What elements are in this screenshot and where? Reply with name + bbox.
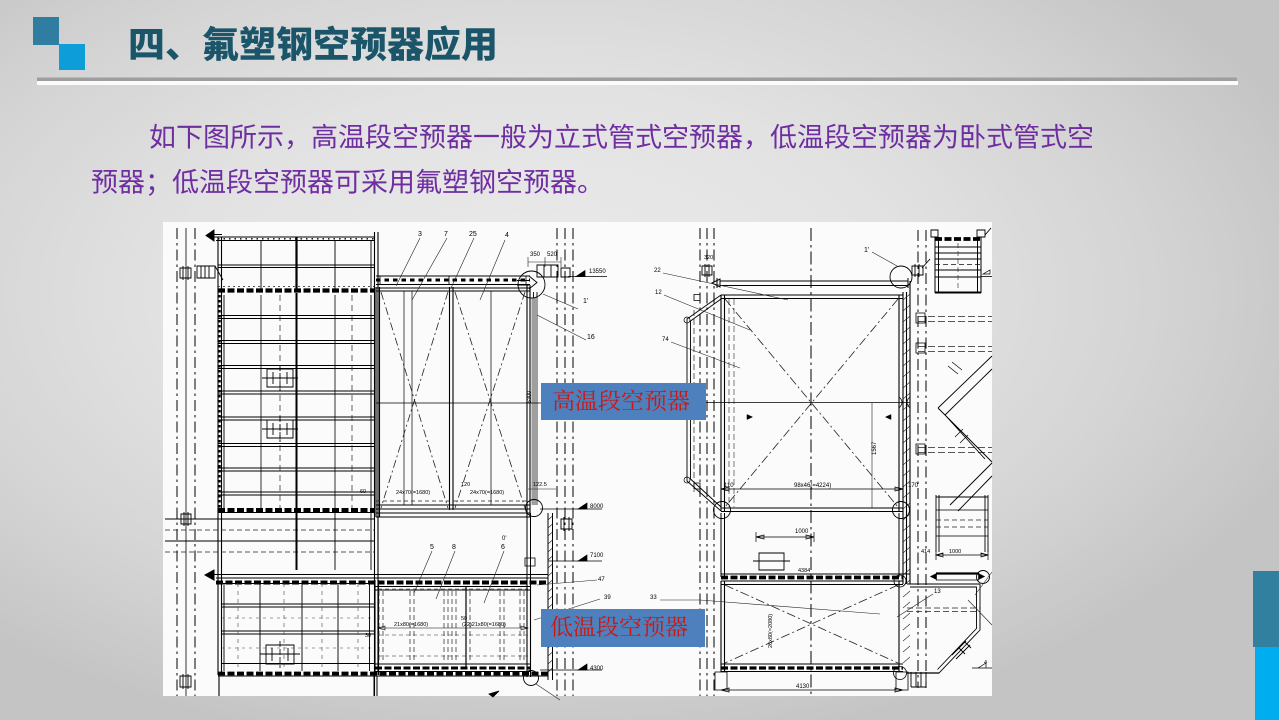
svg-text:24x70(=1680): 24x70(=1680) bbox=[470, 490, 504, 496]
svg-text:0': 0' bbox=[502, 536, 506, 542]
svg-text:170: 170 bbox=[908, 483, 919, 489]
svg-text:110: 110 bbox=[724, 483, 734, 489]
svg-text:4130: 4130 bbox=[796, 684, 810, 690]
svg-text:414: 414 bbox=[921, 549, 930, 555]
svg-text:1': 1' bbox=[864, 247, 869, 254]
svg-text:26x80(=2080): 26x80(=2080) bbox=[768, 614, 774, 648]
svg-text:60: 60 bbox=[360, 489, 366, 495]
svg-text:12: 12 bbox=[655, 290, 662, 296]
svg-text:16: 16 bbox=[587, 334, 595, 341]
svg-text:3: 3 bbox=[418, 231, 422, 238]
svg-text:47: 47 bbox=[598, 577, 605, 583]
svg-text:22: 22 bbox=[654, 268, 661, 274]
svg-text:13550: 13550 bbox=[589, 269, 606, 275]
svg-text:320: 320 bbox=[704, 255, 713, 261]
svg-text:520: 520 bbox=[547, 252, 558, 258]
svg-text:4300: 4300 bbox=[590, 666, 604, 672]
svg-text:25: 25 bbox=[469, 231, 477, 238]
svg-text:5: 5 bbox=[430, 544, 434, 551]
svg-text:350: 350 bbox=[530, 252, 541, 258]
svg-text:4: 4 bbox=[505, 232, 509, 239]
svg-text:122.5: 122.5 bbox=[533, 482, 547, 488]
svg-text:8000: 8000 bbox=[590, 504, 604, 510]
svg-text:24x70(=1680): 24x70(=1680) bbox=[396, 490, 430, 496]
svg-text:21x80(=1680): 21x80(=1680) bbox=[394, 622, 428, 628]
svg-text:39: 39 bbox=[604, 595, 611, 601]
svg-text:1': 1' bbox=[583, 298, 588, 305]
svg-text:74: 74 bbox=[662, 337, 669, 343]
svg-text:50: 50 bbox=[461, 616, 467, 622]
svg-text:(22)21x80(=1680): (22)21x80(=1680) bbox=[462, 622, 506, 628]
svg-text:4384: 4384 bbox=[798, 568, 810, 574]
svg-text:4: 4 bbox=[984, 660, 987, 666]
svg-text:30: 30 bbox=[365, 633, 371, 639]
svg-text:1567: 1567 bbox=[872, 441, 878, 455]
svg-text:1000: 1000 bbox=[795, 529, 809, 535]
svg-text:98x46(=4224): 98x46(=4224) bbox=[794, 483, 831, 489]
svg-text:6: 6 bbox=[501, 544, 505, 551]
svg-text:33: 33 bbox=[650, 595, 657, 601]
svg-text:13: 13 bbox=[934, 589, 941, 595]
svg-text:5300: 5300 bbox=[527, 391, 533, 403]
svg-text:120: 120 bbox=[461, 482, 470, 488]
svg-text:7100: 7100 bbox=[590, 553, 604, 559]
svg-text:1000: 1000 bbox=[949, 549, 961, 555]
svg-text:8: 8 bbox=[452, 544, 456, 551]
svg-text:7: 7 bbox=[444, 231, 448, 238]
